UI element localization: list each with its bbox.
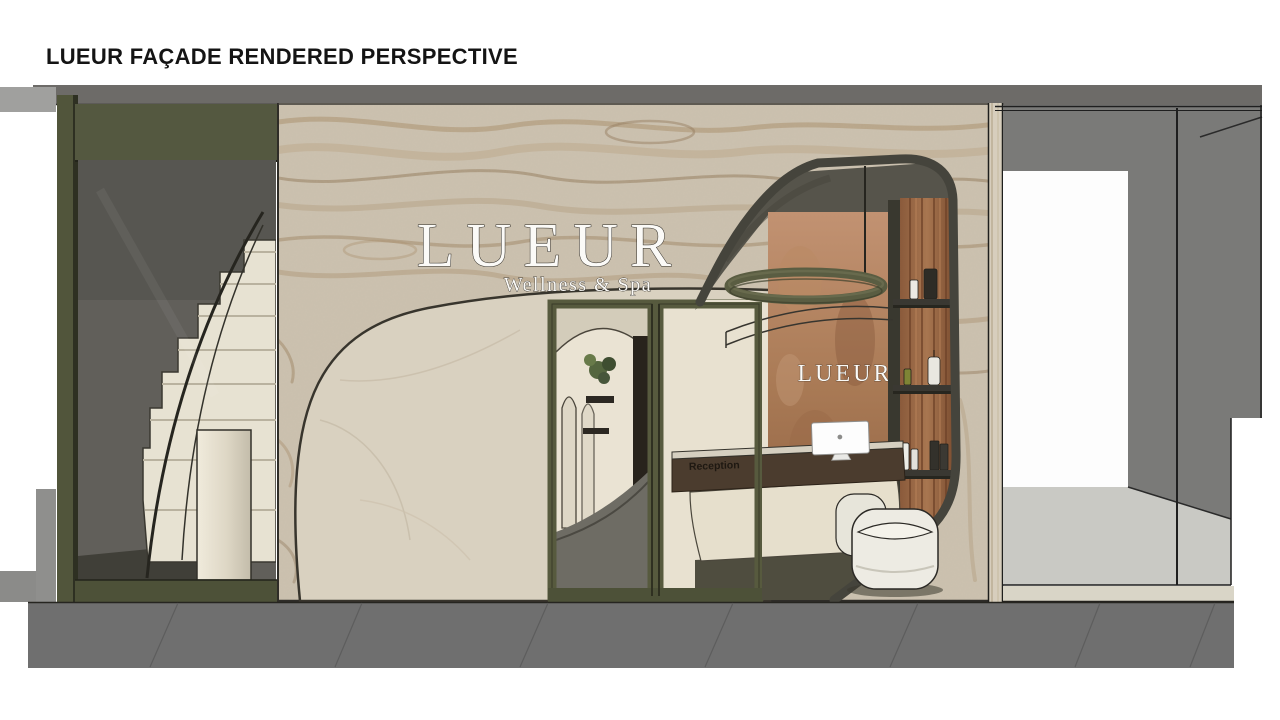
brand-tagline: Wellness & Spa	[504, 274, 652, 296]
facade-rendering: LUEUR	[0, 0, 1280, 720]
pouf-front	[847, 509, 943, 597]
curb	[1003, 586, 1234, 602]
stair-column	[197, 430, 251, 580]
olive-plinth	[75, 580, 278, 602]
brand-sign: LUEUR	[417, 212, 684, 280]
marble-pillar-strip	[988, 103, 1003, 602]
neighbor-doorway	[1003, 171, 1128, 487]
fascia-band	[33, 85, 1262, 105]
left-bay	[57, 95, 278, 602]
sidewalk	[28, 602, 1234, 668]
neighbor-unit	[995, 105, 1262, 602]
olive-header	[75, 104, 278, 162]
presentation-slide: LUEUR FAÇADE RENDERED PERSPECTIVE	[0, 0, 1280, 720]
glass-window-view	[78, 160, 276, 602]
door-sill	[548, 588, 763, 602]
left-wall-fragments	[0, 87, 56, 602]
